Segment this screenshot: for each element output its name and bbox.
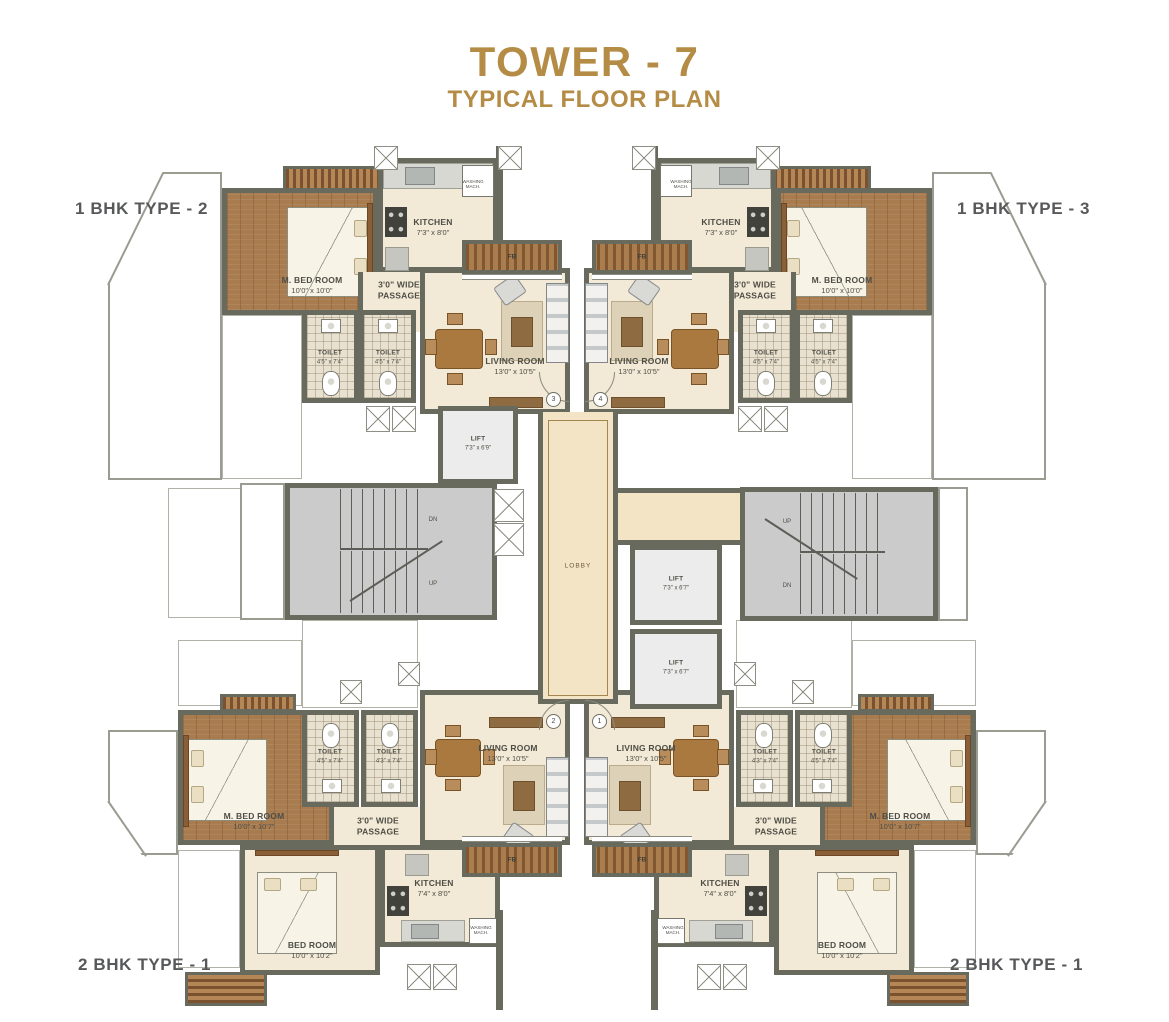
- dining-table-icon: [673, 739, 719, 777]
- duct-icon: [366, 406, 390, 432]
- stair-label-up: UP: [783, 519, 791, 525]
- duct-icon: [756, 146, 780, 170]
- duct-icon: [407, 964, 431, 990]
- kitchen-platform: [725, 854, 749, 876]
- tv-unit-icon: [489, 717, 543, 728]
- sofa-icon: [546, 757, 569, 837]
- chair-icon: [717, 339, 729, 355]
- sliding-window: [462, 274, 562, 280]
- pillow-icon: [191, 786, 204, 803]
- room-label-washing: WASHINGMACH.: [662, 925, 683, 935]
- pillow-icon: [300, 878, 317, 891]
- headboard-icon: [255, 850, 339, 856]
- unit-type-label-bottom-left: 2 BHK TYPE - 1: [78, 955, 211, 975]
- stair-label-up: UP: [429, 581, 437, 587]
- basin-icon: [812, 779, 832, 793]
- room-label-lift: LIFT7'3" x 6'9": [465, 436, 491, 453]
- room-label-washing: WASHINGMACH.: [462, 179, 483, 189]
- chair-icon: [717, 749, 729, 765]
- balcony: [976, 730, 1046, 855]
- stair-treads: [800, 493, 885, 551]
- dining-table-icon: [435, 329, 483, 369]
- chair-icon: [693, 779, 709, 791]
- staircase-right: [740, 487, 938, 621]
- room-label-passage: 3'0" WIDEPASSAGE: [378, 280, 420, 303]
- sofa-icon: [585, 757, 608, 837]
- room-label-lift: LIFT7'3" x 6'7": [663, 576, 689, 593]
- sink-icon: [715, 924, 743, 939]
- room-label-kitchen: KITCHEN7'3" x 8'0": [413, 217, 452, 239]
- flower-bed-label: FB: [638, 857, 647, 864]
- basin-icon: [321, 319, 341, 333]
- headboard-icon: [183, 735, 189, 827]
- basin-icon: [813, 319, 833, 333]
- service-ledge: [178, 850, 240, 968]
- duct-icon: [494, 489, 524, 522]
- flower-bed-label: FB: [638, 254, 647, 261]
- stair-treads: [800, 554, 885, 614]
- room-label-lift: LIFT7'3" x 6'7": [663, 660, 689, 677]
- sink-icon: [411, 924, 439, 939]
- duct-icon: [374, 146, 398, 170]
- tv-unit-icon: [611, 397, 665, 408]
- chair-icon: [693, 725, 709, 737]
- notch-wall: [651, 910, 658, 1010]
- headboard-icon: [965, 735, 971, 827]
- duct-icon: [494, 523, 524, 556]
- chair-icon: [485, 339, 497, 355]
- chair-icon: [447, 373, 463, 385]
- wc-icon: [322, 371, 340, 396]
- pillow-icon: [837, 878, 854, 891]
- entrance-number-3: 3: [546, 392, 561, 407]
- wc-icon: [757, 371, 775, 396]
- duct-icon: [697, 964, 721, 990]
- entrance-number-1: 1: [592, 714, 607, 729]
- basin-icon: [378, 319, 398, 333]
- dining-table-icon: [671, 329, 719, 369]
- bed-icon: [187, 739, 267, 821]
- duct-icon: [340, 680, 362, 704]
- chair-icon: [657, 339, 669, 355]
- chair-icon: [691, 373, 707, 385]
- coffee-table-icon: [513, 781, 535, 811]
- duct-icon: [792, 680, 814, 704]
- basin-icon: [753, 779, 773, 793]
- room-label-passage: 3'0" WIDEPASSAGE: [734, 280, 776, 303]
- duct-icon: [392, 406, 416, 432]
- room-label-toilet: TOILET4'3" x 7'4": [376, 749, 402, 766]
- chair-icon: [445, 725, 461, 737]
- wc-icon: [755, 723, 773, 748]
- wc-icon: [379, 371, 397, 396]
- room-label-kitchen: KITCHEN7'4" x 8'0": [414, 878, 453, 900]
- basin-icon: [322, 779, 342, 793]
- duct-icon: [738, 406, 762, 432]
- lobby-floor-border: [548, 420, 608, 696]
- room-label-passage: 3'0" WIDEPASSAGE: [357, 816, 399, 839]
- unit-type-label-top-left: 1 BHK TYPE - 2: [75, 199, 208, 219]
- basin-icon: [756, 319, 776, 333]
- open-ledge: [168, 488, 242, 618]
- flower-bed-label: FB: [508, 254, 517, 261]
- entrance-number-2: 2: [546, 714, 561, 729]
- duct-icon: [498, 146, 522, 170]
- room-label-kitchen: KITCHEN7'4" x 8'0": [700, 878, 739, 900]
- pillow-icon: [191, 750, 204, 767]
- stair-label-dn: DN: [429, 517, 438, 523]
- unit-type-label-bottom-right: 2 BHK TYPE - 1: [950, 955, 1083, 975]
- dining-table-icon: [435, 739, 481, 777]
- chair-icon: [447, 313, 463, 325]
- chair-icon: [691, 313, 707, 325]
- wc-icon: [381, 723, 399, 748]
- wc-icon: [322, 723, 340, 748]
- stair-balcony: [240, 483, 285, 620]
- room-label-toilet: TOILET4'5" x 7'4": [317, 350, 343, 367]
- wood-deck: [185, 972, 267, 1006]
- room-label-toilet: TOILET4'5" x 7'4": [317, 749, 343, 766]
- unit-type-label-top-right: 1 BHK TYPE - 3: [957, 199, 1090, 219]
- service-ledge: [914, 850, 976, 968]
- coffee-table-icon: [511, 317, 533, 347]
- unit-bottom-left-2bhk: [108, 620, 570, 1012]
- room-label-passage: 3'0" WIDEPASSAGE: [755, 816, 797, 839]
- sink-icon: [405, 167, 435, 185]
- title-block: TOWER - 7 TYPICAL FLOOR PLAN: [0, 38, 1169, 114]
- duct-icon: [632, 146, 656, 170]
- sofa-icon: [546, 283, 569, 363]
- pillow-icon: [354, 220, 367, 237]
- page-title: TOWER - 7: [0, 38, 1169, 86]
- pillow-icon: [950, 786, 963, 803]
- wc-icon: [814, 371, 832, 396]
- stair-label-dn: DN: [783, 583, 792, 589]
- sink-icon: [719, 167, 749, 185]
- room-label-living: LIVING ROOM13'0" x 10'5": [485, 356, 544, 378]
- chair-icon: [425, 339, 437, 355]
- room-label-washing: WASHINGMACH.: [470, 925, 491, 935]
- staircase-left: [285, 483, 497, 620]
- room-label-kitchen: KITCHEN7'3" x 8'0": [701, 217, 740, 239]
- headboard-icon: [815, 850, 899, 856]
- lift-lobby-corridor: [618, 488, 740, 545]
- entrance-number-4: 4: [593, 392, 608, 407]
- duct-icon: [398, 662, 420, 686]
- room-label-toilet: TOILET4'5" x 7'4": [811, 749, 837, 766]
- duct-icon: [723, 964, 747, 990]
- pillow-icon: [873, 878, 890, 891]
- room-label-living: LIVING ROOM13'0" x 10'5": [478, 743, 537, 765]
- room-label-master-bedroom: M. BED ROOM10'0" x 10'7": [224, 811, 285, 833]
- notch-wall: [496, 910, 503, 1010]
- tv-unit-icon: [611, 717, 665, 728]
- sliding-window: [592, 836, 692, 842]
- room-label-toilet: TOILET4'5" x 7'4": [811, 350, 837, 367]
- pillow-icon: [264, 878, 281, 891]
- room-label-living: LIVING ROOM13'0" x 10'5": [616, 743, 675, 765]
- stair-landing-line: [340, 548, 428, 550]
- balcony: [108, 730, 178, 855]
- room-label-lobby: LOBBY: [565, 563, 592, 570]
- stair-treads: [340, 551, 428, 613]
- chair-icon: [425, 749, 437, 765]
- chair-icon: [445, 779, 461, 791]
- floor-plan-canvas: TOWER - 7 TYPICAL FLOOR PLAN 1 BHK TYPE …: [0, 0, 1169, 1022]
- stove-icon: [387, 886, 409, 916]
- stove-icon: [745, 886, 767, 916]
- duct-icon: [734, 662, 756, 686]
- sliding-window: [592, 274, 692, 280]
- room-label-bedroom: BED ROOM10'0" x 10'2": [288, 940, 336, 962]
- room-label-toilet: TOILET4'3" x 7'4": [752, 749, 778, 766]
- pillow-icon: [950, 750, 963, 767]
- duct-icon: [764, 406, 788, 432]
- kitchen-platform: [385, 247, 409, 271]
- basin-icon: [381, 779, 401, 793]
- room-label-toilet: TOILET4'5" x 7'4": [753, 350, 779, 367]
- wood-deck: [887, 972, 969, 1006]
- service-ledge: [852, 315, 932, 479]
- room-label-master-bedroom: M. BED ROOM10'0" x 10'0": [282, 275, 343, 297]
- coffee-table-icon: [621, 317, 643, 347]
- unit-top-right-1bhk: [584, 146, 1046, 482]
- coffee-table-icon: [619, 781, 641, 811]
- service-ledge: [222, 315, 302, 479]
- stair-balcony: [938, 487, 968, 621]
- stair-treads: [340, 489, 428, 548]
- room-label-living: LIVING ROOM13'0" x 10'5": [609, 356, 668, 378]
- sliding-window: [462, 836, 562, 842]
- page-subtitle: TYPICAL FLOOR PLAN: [0, 86, 1169, 114]
- flower-bed-label: FB: [508, 857, 517, 864]
- room-label-toilet: TOILET4'5" x 7'4": [375, 350, 401, 367]
- bed-icon: [887, 739, 967, 821]
- duct-icon: [433, 964, 457, 990]
- room-label-master-bedroom: M. BED ROOM10'0" x 10'0": [812, 275, 873, 297]
- room-label-washing: WASHINGMACH.: [670, 179, 691, 189]
- room-label-bedroom: BED ROOM10'0" x 10'2": [818, 940, 866, 962]
- room-label-master-bedroom: M. BED ROOM10'0" x 10'7": [870, 811, 931, 833]
- sofa-icon: [585, 283, 608, 363]
- stove-icon: [747, 207, 769, 237]
- kitchen-platform: [745, 247, 769, 271]
- wc-icon: [814, 723, 832, 748]
- pillow-icon: [787, 220, 800, 237]
- kitchen-platform: [405, 854, 429, 876]
- stove-icon: [385, 207, 407, 237]
